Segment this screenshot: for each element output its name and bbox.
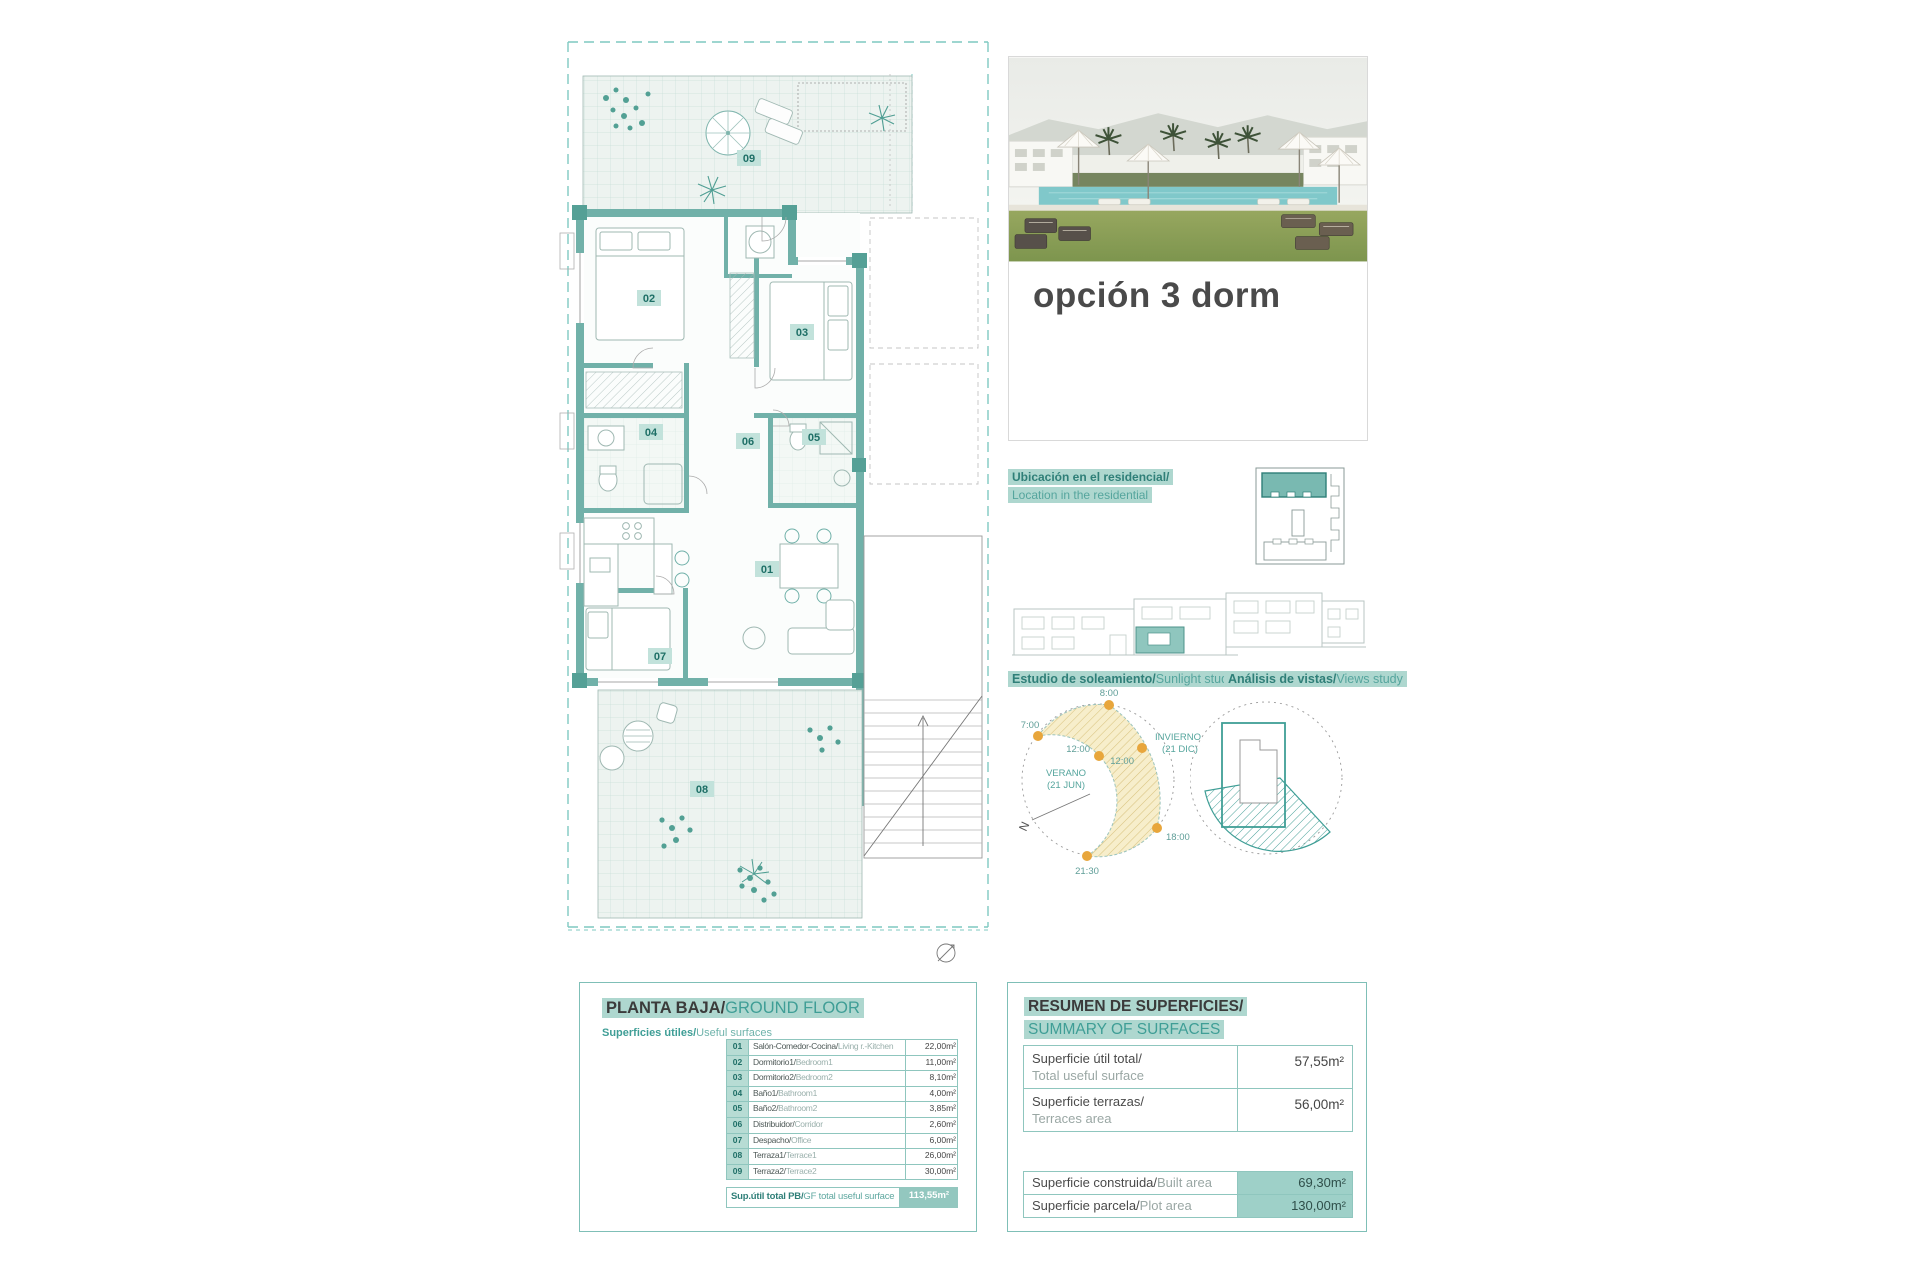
north-label: N (1016, 819, 1032, 833)
views-diagram (1190, 695, 1370, 880)
room-badge: 07 (648, 648, 672, 664)
floor-plan: 09 02 03 04 06 05 01 07 08 (558, 28, 995, 968)
summary-table-bottom: Superficie construida/Built area 69,30m²… (1023, 1171, 1353, 1218)
svg-text:21:30: 21:30 (1075, 866, 1099, 877)
summary-table-top: Superficie útil total/Total useful surfa… (1023, 1045, 1353, 1132)
sunlight-study-label: Estudio de soleamiento/Sunlight study (1008, 670, 1238, 689)
ground-floor-subtitle: Superficies útiles/Useful surfaces (602, 1027, 772, 1039)
table-row: 01 Salón-Comedor-Cocina/Living r.-Kitche… (726, 1039, 958, 1055)
highlighted-unit (1136, 627, 1184, 653)
svg-text:(21 JUN): (21 JUN) (1047, 780, 1085, 791)
svg-text:7:00: 7:00 (1021, 720, 1040, 731)
location-label-en: Location in the residential (1008, 487, 1152, 503)
svg-text:8:00: 8:00 (1100, 688, 1119, 699)
svg-text:08: 08 (696, 784, 708, 796)
svg-text:18:00: 18:00 (1166, 832, 1190, 843)
table-row: 03 Dormitorio2/Bedroom2 8,10m² (726, 1070, 958, 1086)
room-badge: 09 (737, 150, 761, 166)
room-badge: 02 (637, 290, 661, 306)
table-row: 08 Terraza1/Terrace1 26,00m² (726, 1148, 958, 1164)
highlighted-block (1262, 473, 1326, 497)
svg-text:01: 01 (761, 564, 773, 576)
total-value: 113,55m² (900, 1187, 958, 1208)
compass-icon (937, 944, 955, 962)
room-badge: 08 (690, 781, 714, 797)
summary-panel: RESUMEN DE SUPERFICIES/ SUMMARY OF SURFA… (1007, 982, 1367, 1232)
total-row: Sup.útil total PB/GF total useful surfac… (726, 1187, 958, 1208)
parasol-icon (706, 111, 750, 155)
svg-text:07: 07 (654, 651, 666, 663)
svg-text:VERANO: VERANO (1046, 768, 1086, 779)
location-label: Ubicación en el residencial/ Location in… (1008, 468, 1173, 504)
photo-card: opción 3 dorm (1008, 56, 1368, 441)
terrace-2 (583, 76, 912, 213)
north-line (1032, 794, 1090, 820)
exterior-units (560, 233, 574, 569)
table-row: Superficie construida/Built area 69,30m² (1024, 1172, 1352, 1194)
table-row: 09 Terraza2/Terrace2 30,00m² (726, 1164, 958, 1181)
room-badge: 05 (802, 429, 826, 445)
table-row: 07 Despacho/Office 6,00m² (726, 1133, 958, 1149)
table-row: 05 Baño2/Bathroom2 3,85m² (726, 1101, 958, 1117)
svg-text:09: 09 (743, 153, 755, 165)
location-label-es: Ubicación en el residencial/ (1008, 469, 1173, 485)
svg-text:06: 06 (742, 436, 754, 448)
svg-text:05: 05 (808, 432, 820, 444)
svg-text:03: 03 (796, 327, 808, 339)
street-elevation (1008, 583, 1368, 665)
table-row: 06 Distribuidor/Corridor 2,60m² (726, 1117, 958, 1133)
option-title: opción 3 dorm (1009, 262, 1367, 316)
site-plan (1253, 466, 1353, 571)
svg-text:12:00: 12:00 (1110, 756, 1134, 767)
svg-text:12:00: 12:00 (1066, 744, 1090, 755)
views-study-label: Análisis de vistas/Views study (1224, 670, 1407, 689)
room-badge: 04 (639, 424, 663, 440)
room-badge: 01 (755, 561, 779, 577)
terrace-1 (598, 690, 862, 918)
svg-text:02: 02 (643, 293, 655, 305)
ground-floor-title: PLANTA BAJA/GROUND FLOOR (602, 997, 864, 1019)
brochure-sheet: 09 02 03 04 06 05 01 07 08 (0, 0, 1920, 1280)
table-row: Superficie parcela/Plot area 130,00m² (1024, 1194, 1352, 1217)
pool-photo (1009, 57, 1367, 262)
room-badge: 03 (790, 324, 814, 340)
room-badge: 06 (736, 433, 760, 449)
table-row: 04 Baño1/Bathroom1 4,00m² (726, 1086, 958, 1102)
svg-text:04: 04 (645, 427, 658, 439)
views-building (1240, 740, 1277, 803)
table-row: Superficie terrazas/Terraces area 56,00m… (1024, 1088, 1352, 1131)
table-row: 02 Dormitorio1/Bedroom1 11,00m² (726, 1055, 958, 1071)
staircase (864, 536, 982, 858)
surfaces-table: 01 Salón-Comedor-Cocina/Living r.-Kitche… (726, 1039, 958, 1180)
table-row: Superficie útil total/Total useful surfa… (1024, 1046, 1352, 1088)
ground-floor-panel: PLANTA BAJA/GROUND FLOOR Superficies úti… (579, 982, 977, 1232)
summary-title: RESUMEN DE SUPERFICIES/ SUMMARY OF SURFA… (1024, 995, 1247, 1041)
